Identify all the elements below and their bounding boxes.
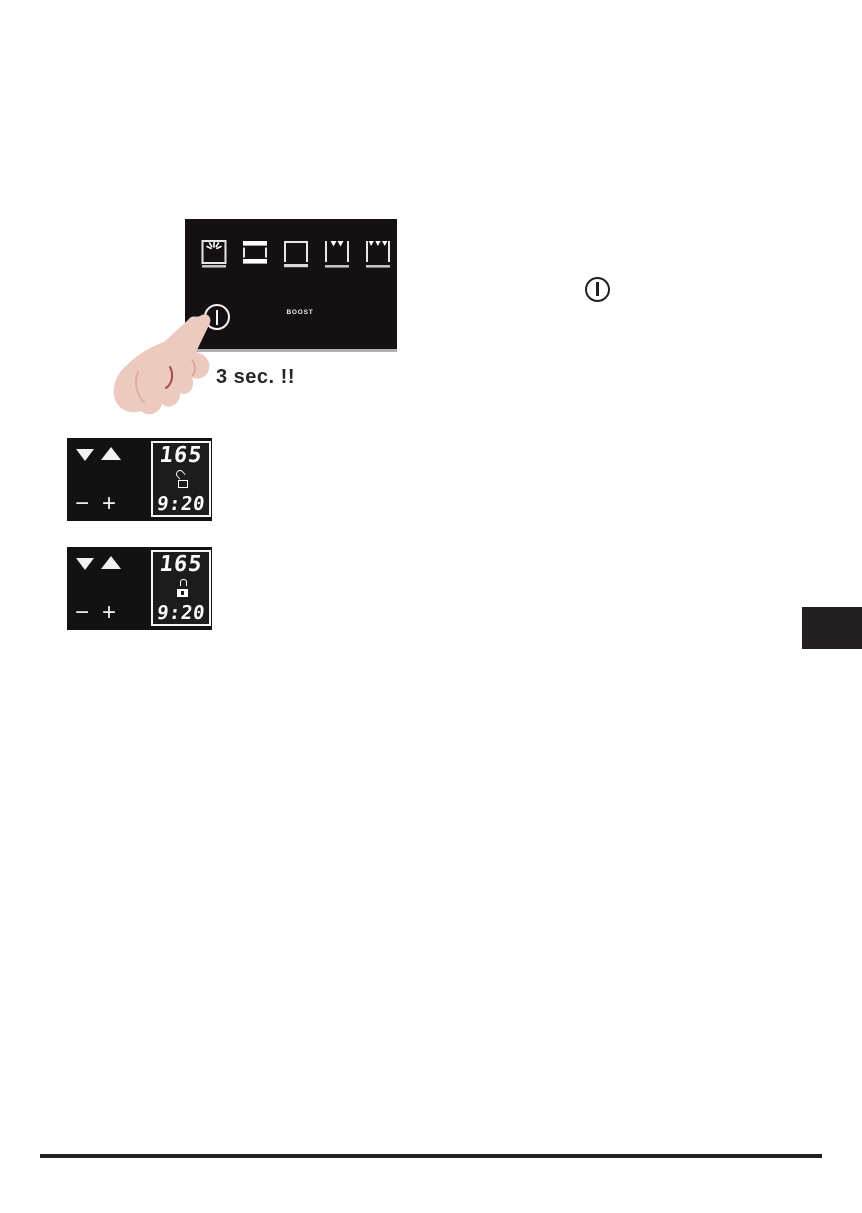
function-icons-row [199,236,393,270]
pointing-hand-image [108,312,248,422]
lcd-display: 165 9:20 [151,441,211,517]
time-readout: 9:20 [152,602,211,624]
footer-rule [40,1154,822,1158]
boost-button-symbol: BOOST [286,304,314,321]
arrow-down-icon [76,558,94,570]
arrow-down-icon [76,449,94,461]
minus-key: − [75,599,89,627]
boost-label: BOOST [286,304,314,321]
lock-shackle [174,468,185,479]
display-figure-unlocked: − + 165 9:20 [67,438,212,521]
plus-key: + [102,490,116,518]
page-edge-tab [802,607,862,649]
locked-icon [177,583,190,597]
large-grill-icon [363,236,393,270]
power-icon [585,277,610,302]
arrow-up-icon [101,447,121,460]
lock-keyhole [181,591,184,594]
manual-page: BOOST 3 sec. !! − + 165 9:20 − [0,0,862,1213]
bottom-heat-icon [281,236,311,270]
temperature-readout: 165 [151,443,210,468]
unlocked-icon [177,474,190,488]
lcd-display: 165 9:20 [151,550,211,626]
lock-shackle [180,579,187,586]
oven-lamp-icon [199,236,229,270]
display-figure-locked: − + 165 9:20 [67,547,212,630]
plus-key: + [102,599,116,627]
minus-key: − [75,490,89,518]
power-icon-stick [596,282,598,296]
grill-icon [322,236,352,270]
arrow-up-icon [101,556,121,569]
time-readout: 9:20 [152,493,211,515]
temperature-readout: 165 [151,552,210,577]
top-and-bottom-heat-icon [240,236,270,270]
lock-body [178,480,188,488]
